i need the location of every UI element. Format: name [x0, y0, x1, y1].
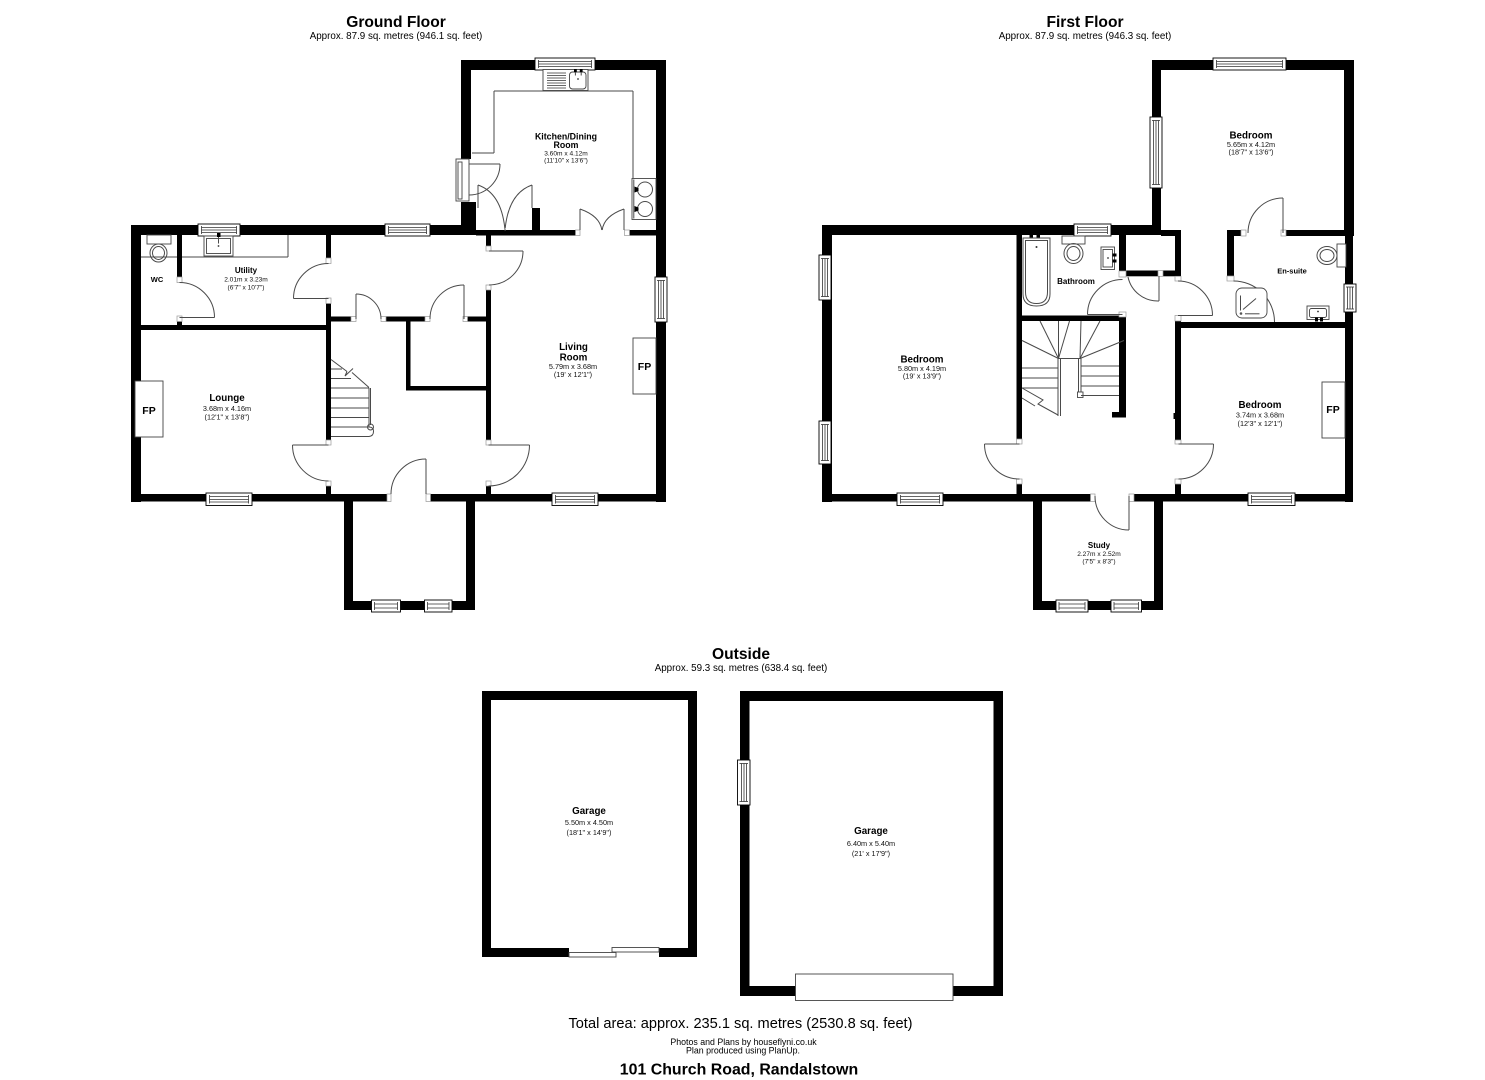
svg-text:Bedroom: Bedroom: [1238, 400, 1281, 411]
svg-text:Approx. 59.3 sq. metres (638.4: Approx. 59.3 sq. metres (638.4 sq. feet): [655, 663, 828, 674]
svg-text:(7'5" x 8'3"): (7'5" x 8'3"): [1082, 559, 1115, 566]
svg-text:Approx. 87.9 sq. metres (946.3: Approx. 87.9 sq. metres (946.3 sq. feet): [999, 31, 1172, 42]
svg-text:First Floor: First Floor: [1046, 14, 1123, 31]
svg-text:3.60m x 4.12m: 3.60m x 4.12m: [544, 151, 588, 158]
svg-text:WC: WC: [151, 275, 164, 284]
svg-text:(19' x 12'1"): (19' x 12'1"): [554, 370, 592, 379]
svg-text:(21' x 17'9"): (21' x 17'9"): [852, 849, 890, 858]
svg-text:2.27m x 2.52m: 2.27m x 2.52m: [1077, 551, 1121, 558]
svg-text:Study: Study: [1088, 541, 1111, 550]
svg-text:Bathroom: Bathroom: [1057, 277, 1095, 286]
svg-text:6.40m x 5.40m: 6.40m x 5.40m: [847, 839, 895, 848]
svg-text:(18'7" x 13'6"): (18'7" x 13'6"): [1229, 148, 1274, 157]
svg-text:FP: FP: [142, 405, 155, 417]
svg-text:(12'3" x 12'1"): (12'3" x 12'1"): [1238, 419, 1283, 428]
svg-text:101 Church Road, Randalstown: 101 Church Road, Randalstown: [620, 1062, 858, 1079]
svg-text:Living: Living: [559, 342, 588, 353]
svg-text:FP: FP: [1326, 404, 1339, 416]
svg-text:(19' x 13'9"): (19' x 13'9"): [903, 372, 941, 381]
svg-text:(12'1" x 13'8"): (12'1" x 13'8"): [205, 413, 250, 422]
svg-text:Utility: Utility: [235, 266, 258, 275]
svg-text:Garage: Garage: [572, 806, 606, 817]
svg-text:(11'10" x 13'6"): (11'10" x 13'6"): [544, 158, 588, 165]
svg-text:(18'1" x 14'9"): (18'1" x 14'9"): [567, 828, 612, 837]
svg-text:FP: FP: [638, 361, 651, 373]
svg-text:2.01m x 3.23m: 2.01m x 3.23m: [224, 277, 268, 284]
svg-text:(6'7" x 10'7"): (6'7" x 10'7"): [228, 285, 265, 292]
svg-text:En-suite: En-suite: [1277, 267, 1307, 276]
svg-text:Lounge: Lounge: [209, 393, 245, 404]
svg-text:Approx. 87.9 sq. metres (946.1: Approx. 87.9 sq. metres (946.1 sq. feet): [310, 31, 483, 42]
svg-text:Total area: approx. 235.1 sq.: Total area: approx. 235.1 sq. metres (25…: [569, 1016, 913, 1032]
svg-text:5.50m x 4.50m: 5.50m x 4.50m: [565, 818, 613, 827]
svg-text:Garage: Garage: [854, 826, 888, 837]
svg-text:Plan produced using PlanUp.: Plan produced using PlanUp.: [686, 1046, 800, 1056]
svg-text:Ground Floor: Ground Floor: [346, 14, 446, 31]
svg-text:Room: Room: [554, 140, 579, 150]
svg-text:Outside: Outside: [712, 646, 770, 663]
